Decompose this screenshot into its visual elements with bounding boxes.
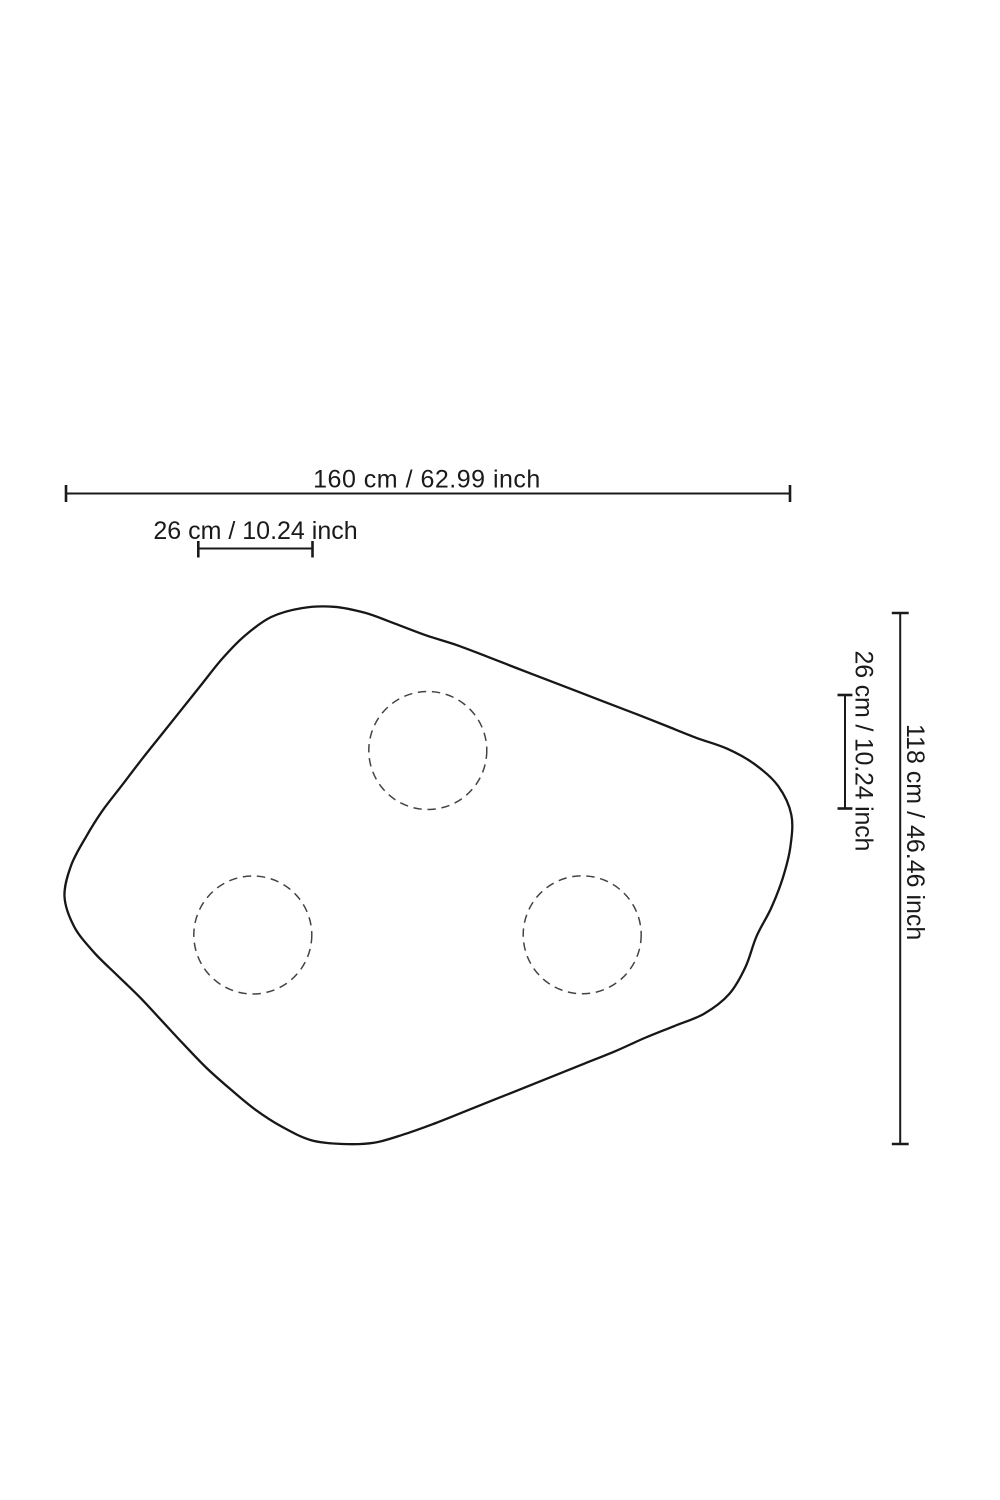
svg-text:160 cm / 62.99 inch: 160 cm / 62.99 inch: [313, 466, 541, 494]
svg-text:26 cm / 10.24 inch: 26 cm / 10.24 inch: [850, 651, 878, 852]
svg-text:26 cm / 10.24 inch: 26 cm / 10.24 inch: [153, 517, 357, 545]
svg-text:118 cm / 46.46 inch: 118 cm / 46.46 inch: [901, 724, 929, 940]
